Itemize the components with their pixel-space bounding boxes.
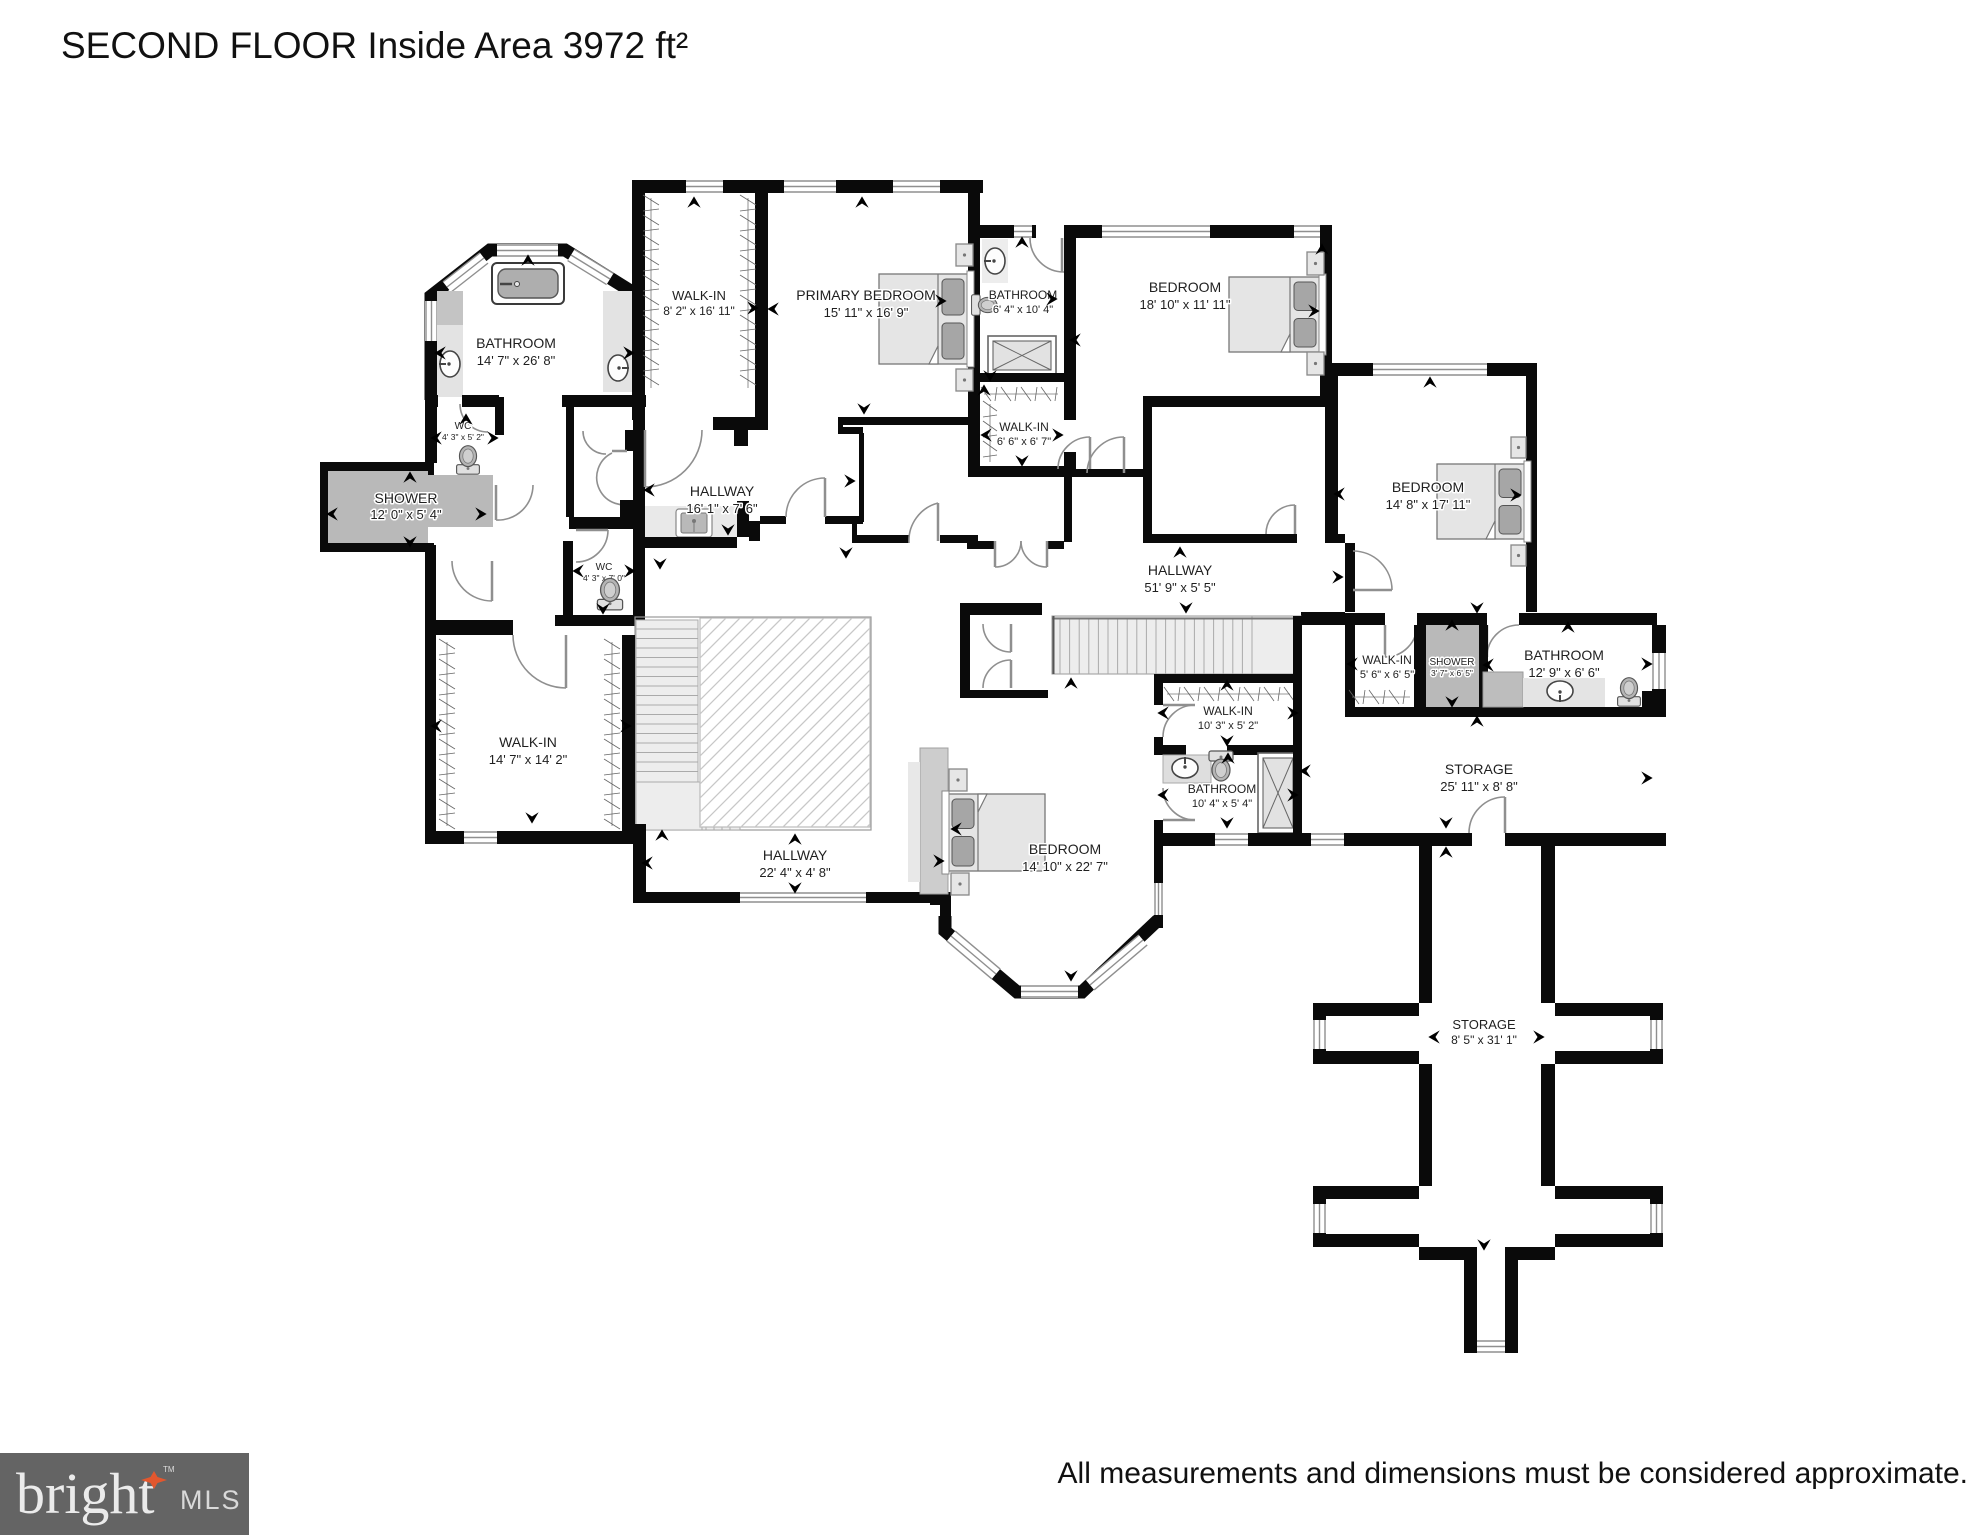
svg-text:14' 7" x 26' 8": 14' 7" x 26' 8" [477,353,556,368]
svg-text:16' 1" x 7' 6": 16' 1" x 7' 6" [686,501,758,516]
svg-text:WALK-IN: WALK-IN [672,288,726,303]
svg-text:51' 9" x 5' 5": 51' 9" x 5' 5" [1144,580,1216,595]
svg-text:WC: WC [596,562,613,573]
svg-text:25' 11" x 8' 8": 25' 11" x 8' 8" [1440,779,1518,794]
svg-text:10' 4" x 5' 4": 10' 4" x 5' 4" [1192,798,1252,810]
svg-text:WALK-IN: WALK-IN [499,734,557,750]
svg-text:SHOWER: SHOWER [1430,657,1475,668]
svg-text:WALK-IN: WALK-IN [999,420,1049,434]
svg-text:HALLWAY: HALLWAY [763,847,828,863]
svg-text:PRIMARY BEDROOM: PRIMARY BEDROOM [796,287,936,303]
svg-text:14' 7" x 14' 2": 14' 7" x 14' 2" [489,752,568,767]
svg-text:10' 3" x 5' 2": 10' 3" x 5' 2" [1198,720,1258,732]
svg-text:BEDROOM: BEDROOM [1029,841,1101,857]
svg-text:HALLWAY: HALLWAY [1148,562,1213,578]
svg-text:5' 6" x 6' 5": 5' 6" x 6' 5" [1360,669,1414,681]
svg-text:MLS: MLS [180,1485,242,1515]
svg-text:All measurements and dimension: All measurements and dimensions must be … [1058,1457,1968,1490]
svg-text:BEDROOM: BEDROOM [1392,479,1464,495]
svg-text:14' 10" x 22' 7": 14' 10" x 22' 7" [1022,859,1108,874]
svg-text:HALLWAY: HALLWAY [690,483,755,499]
svg-text:BATHROOM: BATHROOM [1188,782,1256,796]
svg-text:BATHROOM: BATHROOM [989,288,1057,302]
svg-text:8' 5" x 31' 1": 8' 5" x 31' 1" [1451,1033,1517,1047]
svg-text:STORAGE: STORAGE [1445,761,1513,777]
svg-text:BATHROOM: BATHROOM [476,335,556,351]
svg-text:15' 11" x 16' 9": 15' 11" x 16' 9" [824,305,909,320]
svg-text:8' 2" x 16' 11": 8' 2" x 16' 11" [663,304,735,318]
svg-text:TM: TM [163,1465,175,1474]
svg-text:bright: bright [16,1461,155,1526]
svg-text:6' 4" x 10' 4": 6' 4" x 10' 4" [993,304,1053,316]
svg-text:WC: WC [455,421,472,432]
svg-text:BATHROOM: BATHROOM [1524,647,1604,663]
svg-text:12' 0" x 5' 4": 12' 0" x 5' 4" [370,507,442,522]
svg-text:6' 6" x 6' 7": 6' 6" x 6' 7" [997,436,1051,448]
svg-text:WALK-IN: WALK-IN [1203,704,1253,718]
svg-text:4' 3" x 5' 2": 4' 3" x 5' 2" [442,432,484,442]
svg-text:12' 9" x 6' 6": 12' 9" x 6' 6" [1528,665,1600,680]
svg-text:SECOND FLOOR Inside Area 3972: SECOND FLOOR Inside Area 3972 ft² [61,25,688,66]
svg-text:STORAGE: STORAGE [1452,1017,1516,1032]
svg-text:WALK-IN: WALK-IN [1362,653,1412,667]
svg-text:SHOWER: SHOWER [375,490,438,506]
svg-text:22' 4" x 4' 8": 22' 4" x 4' 8" [759,865,831,880]
svg-text:18' 10" x 11' 11": 18' 10" x 11' 11" [1139,297,1230,312]
svg-text:3' 7" x 6' 5": 3' 7" x 6' 5" [1431,668,1473,678]
svg-text:14' 8" x 17' 11": 14' 8" x 17' 11" [1386,497,1471,512]
svg-text:BEDROOM: BEDROOM [1149,279,1221,295]
